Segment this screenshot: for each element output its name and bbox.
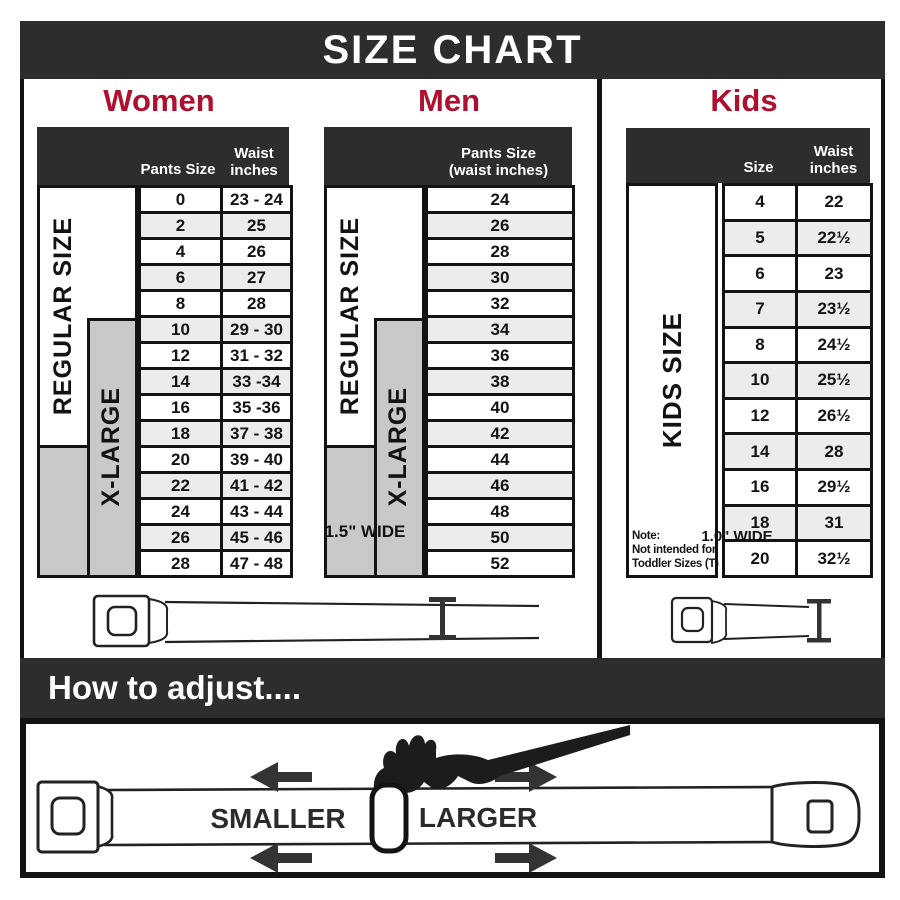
seatbelt-buckle-icon [94,596,167,646]
table-cell: 31 - 32 [222,343,292,369]
table-cell: 24½ [797,327,872,363]
arrow-left-top-icon [250,762,312,792]
table-cell: 16 [140,395,222,421]
hand-icon [374,725,630,802]
table-cell: 8 [724,327,797,363]
table-cell: 45 - 46 [222,525,292,551]
women-xlarge-label: X-LARGE [87,318,135,575]
seatbelt-buckle-icon [38,782,112,852]
table-cell: 4 [724,185,797,221]
table-cell: 29½ [797,470,872,506]
table-cell: 27 [222,265,292,291]
table-cell: 33 -34 [222,369,292,395]
men-section-title: Men [349,83,549,123]
table-cell: 8 [140,291,222,317]
table-cell: 44 [427,447,574,473]
men-size-group-labels: REGULAR SIZE X-LARGE [324,185,425,578]
table-cell: 24 [140,499,222,525]
table-cell: 48 [427,499,574,525]
chart-area: Women Men Kids Pants Size Waist inches R… [20,79,885,658]
table-cell: 34 [427,317,574,343]
table-cell: 38 [427,369,574,395]
table-cell: 24 [427,187,574,213]
table-cell: 7 [724,291,797,327]
table-cell: 22 [797,185,872,221]
kids-table-header: Size Waist inches [626,128,870,183]
table-cell: 20 [724,541,797,577]
table-cell: 28 [140,551,222,577]
table-cell: 28 [427,239,574,265]
arrow-left-bottom-icon [250,843,312,873]
kids-section-title: Kids [644,83,844,123]
section-divider [597,79,602,658]
women-section-title: Women [59,83,259,123]
women-pants-size-header: Pants Size [137,162,219,179]
table-cell: 16 [724,470,797,506]
table-cell: 10 [140,317,222,343]
table-cell: 14 [140,369,222,395]
kids-size-table: 422522½623723½824½1025½1226½14281629½183… [722,183,873,578]
women-size-group-labels: REGULAR SIZE X-LARGE [37,185,138,578]
men-table-header: Pants Size (waist inches) [324,127,572,185]
table-cell: 30 [427,265,574,291]
title-bar: SIZE CHART [20,21,885,79]
table-cell: 20 [140,447,222,473]
table-cell: 32 [427,291,574,317]
table-cell: 26½ [797,398,872,434]
table-cell: 22½ [797,220,872,256]
table-cell: 43 - 44 [222,499,292,525]
larger-label: LARGER [378,802,578,834]
table-cell: 25½ [797,363,872,399]
table-cell: 37 - 38 [222,421,292,447]
table-cell: 50 [427,525,574,551]
table-cell: 23 - 24 [222,187,292,213]
table-cell: 23½ [797,291,872,327]
adult-belt-illustration [69,585,544,657]
seatbelt-buckle-icon [672,598,726,643]
table-cell: 42 [427,421,574,447]
table-cell: 2 [140,213,222,239]
width-measure-icon [807,599,831,643]
women-size-table: 023 - 242254266278281029 - 301231 - 3214… [138,185,293,578]
women-table-header: Pants Size Waist inches [37,127,289,185]
table-cell: 6 [140,265,222,291]
kids-size-label: KIDS SIZE [629,186,715,575]
how-to-adjust-bar: How to adjust.... [20,658,885,718]
men-size-table: 242628303234363840424446485052 [425,185,575,578]
table-cell: 40 [427,395,574,421]
table-cell: 29 - 30 [222,317,292,343]
table-cell: 52 [427,551,574,577]
kids-belt-width-label: 1.0" WIDE [677,528,797,545]
table-cell: 26 [140,525,222,551]
men-regular-size-label: REGULAR SIZE [327,188,374,445]
table-cell: 6 [724,256,797,292]
table-cell: 23 [797,256,872,292]
belt-strap [165,602,539,642]
arrow-right-bottom-icon [495,843,557,873]
table-cell: 32½ [797,541,872,577]
table-cell: 26 [222,239,292,265]
table-cell: 25 [222,213,292,239]
adjust-belt-illustration [26,724,879,872]
table-cell: 12 [140,343,222,369]
men-pants-size-header: Pants Size (waist inches) [425,146,572,180]
table-cell: 47 - 48 [222,551,292,577]
table-cell: 46 [427,473,574,499]
table-cell: 39 - 40 [222,447,292,473]
table-cell: 41 - 42 [222,473,292,499]
page-title: SIZE CHART [323,28,583,72]
table-cell: 18 [140,421,222,447]
table-cell: 4 [140,239,222,265]
table-cell: 28 [797,434,872,470]
width-measure-icon [429,597,456,640]
how-to-adjust-title: How to adjust.... [48,669,301,706]
women-waist-header: Waist inches [219,146,289,180]
table-cell: 36 [427,343,574,369]
table-cell: 14 [724,434,797,470]
table-cell: 31 [797,505,872,541]
table-cell: 5 [724,220,797,256]
table-cell: 12 [724,398,797,434]
belt-tip-icon [772,783,859,847]
belt-strap [724,604,809,639]
men-xlarge-band-foot [327,445,374,575]
table-cell: 35 -36 [222,395,292,421]
table-cell: 28 [222,291,292,317]
kids-waist-header: Waist inches [797,144,870,178]
kids-size-header: Size [722,160,795,177]
table-cell: 22 [140,473,222,499]
women-xlarge-band-foot [40,445,87,575]
smaller-label: SMALLER [178,803,378,835]
table-cell: 10 [724,363,797,399]
table-cell: 26 [427,213,574,239]
adjust-illustration-box [20,718,885,878]
kids-size-group-label: KIDS SIZE Note: Not intended for Toddler… [626,183,718,578]
table-cell: 0 [140,187,222,213]
adult-belt-width-label: 1.5" WIDE [290,522,440,542]
kids-belt-illustration [664,590,874,652]
women-regular-size-label: REGULAR SIZE [40,188,87,445]
